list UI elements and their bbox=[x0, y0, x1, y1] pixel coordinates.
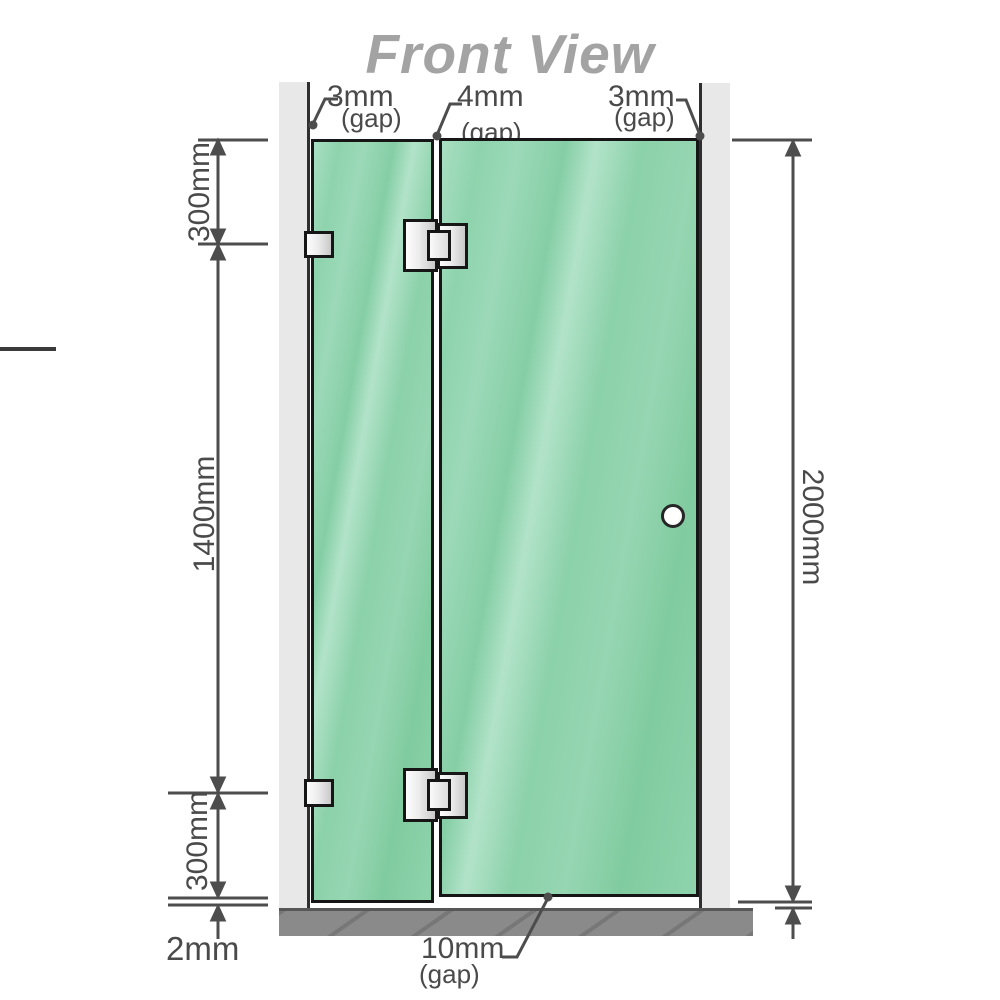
gap-label-top-right-sub: (gap) bbox=[614, 104, 675, 130]
leader-lines bbox=[313, 99, 700, 957]
dimension-label-left-middle: 1400mm bbox=[190, 456, 220, 573]
dimension-lines-overlay bbox=[0, 0, 1000, 1000]
dimension-label-left-top: 300mm bbox=[185, 142, 215, 242]
dimension-label-overall-height: 2000mm bbox=[797, 469, 827, 586]
leader-dots bbox=[309, 121, 705, 902]
dimension-label-left-bottom: 300mm bbox=[183, 791, 213, 891]
gap-label-top-middle: 4mm bbox=[457, 82, 524, 112]
shower-screen-front-view-diagram: Front View (gap) bbox=[0, 0, 1000, 1000]
gap-label-bottom-door-sub: (gap) bbox=[419, 961, 480, 987]
gap-label-bottom-fixed: 2mm bbox=[166, 932, 239, 965]
gap-label-top-left-sub: (gap) bbox=[341, 105, 402, 131]
